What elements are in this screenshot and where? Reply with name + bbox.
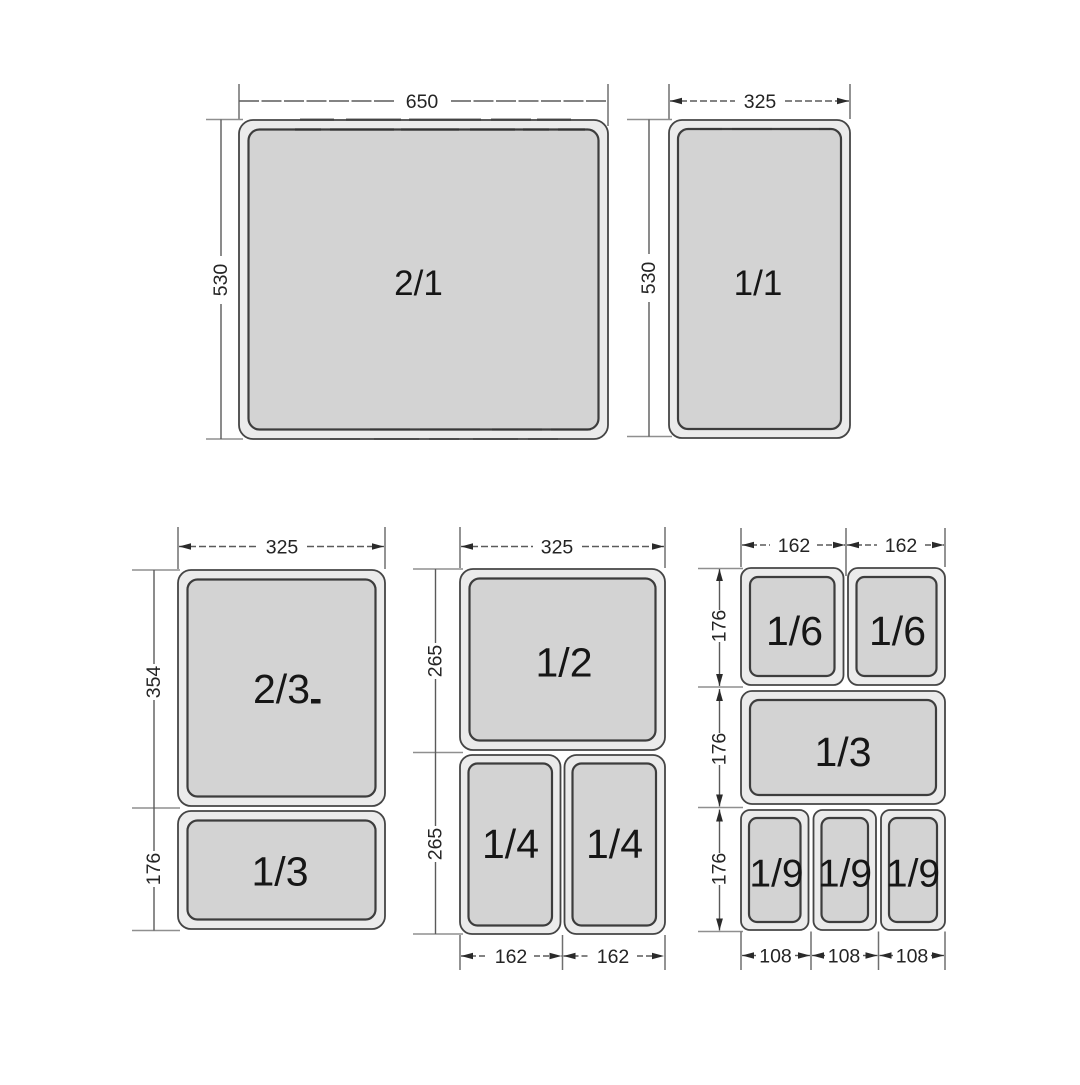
svg-text:1/9: 1/9 [749,853,803,896]
svg-text:2/1: 2/1 [394,264,443,303]
svg-text:1/9: 1/9 [886,853,940,896]
svg-text:108: 108 [828,946,861,968]
svg-text:1/6: 1/6 [766,608,823,654]
svg-text:1/1: 1/1 [734,264,783,303]
svg-text:176: 176 [143,853,165,886]
svg-text:1/4: 1/4 [482,821,539,867]
svg-text:1/3: 1/3 [815,729,872,775]
svg-text:162: 162 [495,946,528,968]
svg-text:1/3: 1/3 [252,849,309,895]
svg-text:1/2: 1/2 [536,640,593,686]
svg-text:650: 650 [406,91,439,113]
svg-text:1/4: 1/4 [586,821,643,867]
svg-text:325: 325 [541,537,574,559]
svg-text:162: 162 [885,535,918,557]
svg-text:354: 354 [143,666,165,699]
svg-text:176: 176 [709,853,731,886]
svg-text:176: 176 [709,733,731,766]
svg-text:162: 162 [778,535,811,557]
svg-text:1/9: 1/9 [818,853,872,896]
svg-text:108: 108 [759,946,792,968]
svg-text:1/6: 1/6 [869,608,926,654]
svg-text:2/3: 2/3 [253,666,310,712]
svg-text:108: 108 [896,946,929,968]
svg-text:530: 530 [210,264,232,297]
svg-text:265: 265 [425,645,447,678]
svg-text:176: 176 [709,610,731,643]
svg-text:265: 265 [425,828,447,861]
svg-text:162: 162 [597,946,630,968]
svg-text:325: 325 [266,537,299,559]
svg-text:325: 325 [744,91,777,113]
svg-text:530: 530 [638,262,660,295]
